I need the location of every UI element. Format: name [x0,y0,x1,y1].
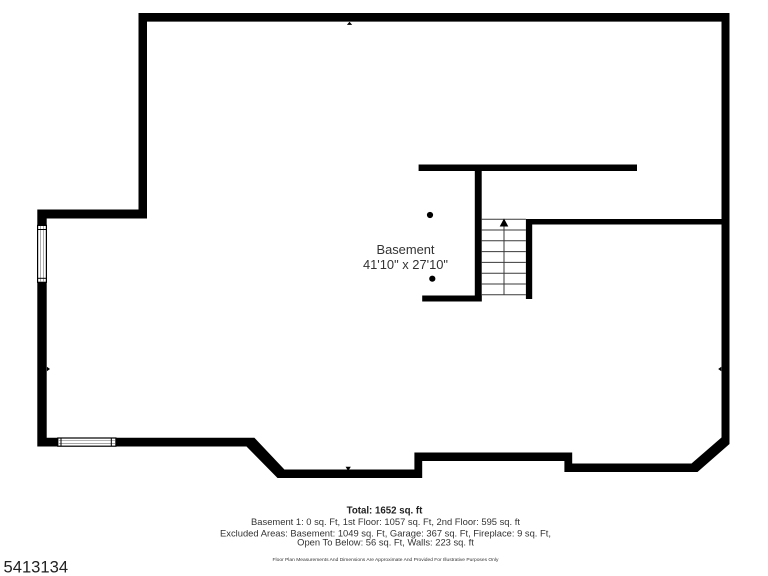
svg-text:Basement: Basement [376,242,434,257]
svg-text:5413134: 5413134 [4,558,69,576]
svg-text:41'10" x 27'10": 41'10" x 27'10" [363,257,448,272]
svg-text:Floor Plan Measurements And Di: Floor Plan Measurements And Dimensions A… [273,557,499,563]
svg-text:Open To Below: 56 sq. Ft, Wall: Open To Below: 56 sq. Ft, Walls: 223 sq.… [297,537,474,548]
svg-text:Total: 1652 sq. ft: Total: 1652 sq. ft [347,506,423,517]
svg-text:Basement 1: 0 sq. Ft, 1st Floo: Basement 1: 0 sq. Ft, 1st Floor: 1057 sq… [251,516,520,527]
